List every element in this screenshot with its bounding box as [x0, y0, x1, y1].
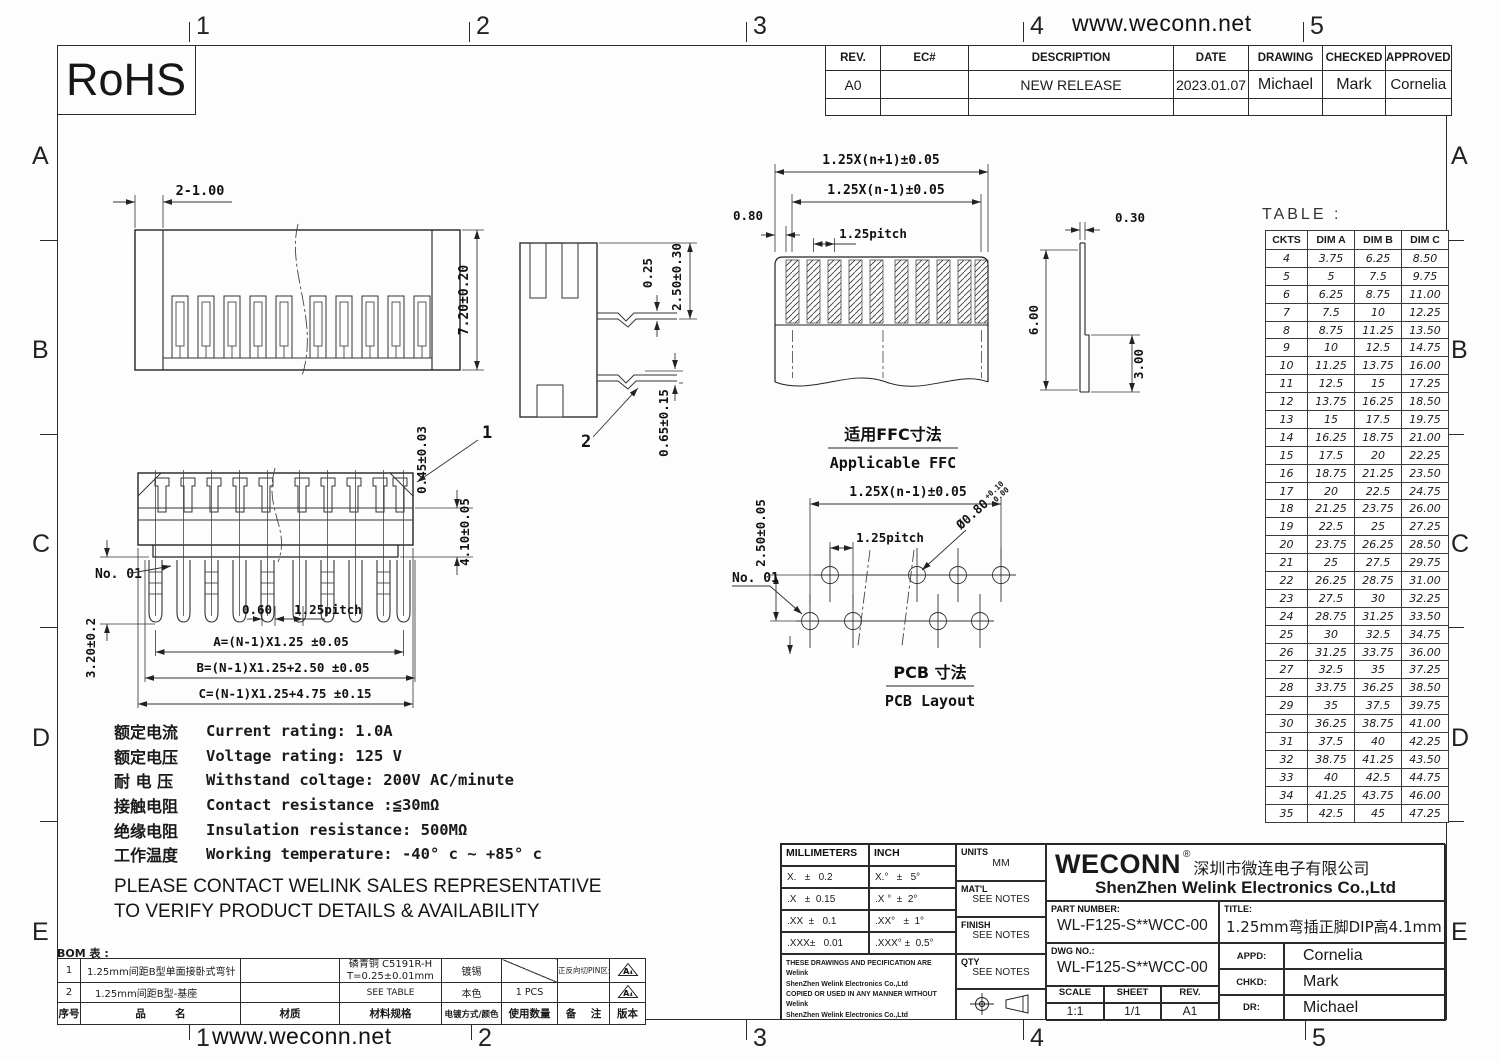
- dim-c-cell: 33.50: [1402, 607, 1449, 625]
- revision-header-cell: REV.: [826, 46, 881, 71]
- ckts-cell: 4: [1266, 250, 1308, 268]
- zone-number: 3: [753, 12, 767, 41]
- dim-a-cell: 38.75: [1308, 750, 1355, 768]
- table-row: 17 20 22.5 24.75: [1266, 482, 1449, 500]
- pcb-dim-hole: Ø0.80: [952, 496, 991, 533]
- bom-name: 1.25mm间距B型-基座: [81, 983, 241, 1003]
- dim-pin-length: 3.20±0.2: [85, 618, 98, 678]
- dr-value: Michael: [1284, 995, 1446, 1021]
- table-row: 30 36.25 38.75 41.00: [1266, 715, 1449, 733]
- company-header: WECONN ® 深圳市微连电子有限公司 ShenZhen Welink Ele…: [1046, 844, 1446, 901]
- qty-cell: QTY SEE NOTES: [956, 954, 1046, 989]
- ckts-cell: 26: [1266, 643, 1308, 661]
- qty-value: SEE NOTES: [957, 967, 1045, 978]
- dim-b-cell: 38.75: [1355, 715, 1402, 733]
- bottom-view-drawing: No. 01 3.20±0.2 0.60 1.25pitch A=(N-1)X1…: [85, 420, 510, 720]
- dim-c-cell: 17.25: [1402, 375, 1449, 393]
- dim-b-cell: 45: [1355, 804, 1402, 822]
- dim-c-cell: 32.25: [1402, 589, 1449, 607]
- ffc-caption-cn: 适用FFC寸法: [844, 425, 942, 444]
- zone-tick: [1447, 627, 1464, 628]
- drawing-sheet: 1 2 3 4 5 1 2 3 4 5 A B C D E A B C D E: [0, 0, 1500, 1061]
- dwg-no-cell: DWG NO.: WL-F125-S**WCC-00: [1046, 943, 1219, 986]
- dim-b-cell: 41.25: [1355, 750, 1402, 768]
- dim-b-cell: 16.25: [1355, 393, 1402, 411]
- table-row: 25 30 32.5 34.75: [1266, 625, 1449, 643]
- revision-header-row: REV.EC#DESCRIPTIONDATEDRAWINGCHECKEDAPPR…: [826, 46, 1452, 71]
- zone-tick: [1023, 1020, 1024, 1040]
- dim-housing-height: 7.20±0.20: [457, 265, 472, 336]
- dim-c-cell: 28.50: [1402, 536, 1449, 554]
- table-row: 8 8.75 11.25 13.50: [1266, 321, 1449, 339]
- ckts-cell: 6: [1266, 285, 1308, 303]
- table-row: 20 23.75 26.25 28.50: [1266, 536, 1449, 554]
- dim-table-header-cell: DIM C: [1402, 231, 1449, 250]
- sales-note-line1: PLEASE CONTACT WELINK SALES REPRESENTATI…: [114, 874, 601, 899]
- part-number-value: WL-F125-S**WCC-00: [1047, 914, 1218, 935]
- ffc-caption-en: Applicable FFC: [830, 454, 956, 472]
- units-value: MM: [957, 857, 1045, 869]
- tolerance-row: .XXX± 0.01 .XXX° ± 0.5°: [781, 932, 956, 954]
- table-row: 19 22.5 25 27.25: [1266, 518, 1449, 536]
- appd-value: Cornelia: [1284, 943, 1446, 969]
- table-row: 18 21.25 23.75 26.00: [1266, 500, 1449, 518]
- revision-header-cell: CHECKED: [1323, 46, 1386, 71]
- disclaimer: THESE DRAWINGS AND PECIFICATION ARE Weli…: [781, 954, 956, 1020]
- revision-table: REV.EC#DESCRIPTIONDATEDRAWINGCHECKEDAPPR…: [825, 45, 1452, 116]
- zone-tick: [1447, 434, 1464, 435]
- spec-label-cn: 耐 电 压: [114, 768, 206, 792]
- dim-a-cell: 5: [1308, 267, 1355, 285]
- dim-b-cell: 8.75: [1355, 285, 1402, 303]
- dim-b-cell: 40: [1355, 733, 1402, 751]
- tolerance-row: .XX ± 0.1 .XX° ± 1°: [781, 910, 956, 932]
- ckts-cell: 18: [1266, 500, 1308, 518]
- dim-a-cell: 40: [1308, 768, 1355, 786]
- table-row: 21 25 27.5 29.75: [1266, 554, 1449, 572]
- zone-letter: B: [32, 336, 49, 365]
- spec-line: 工作温度 Working temperature: -40° c ~ +85° …: [114, 842, 601, 867]
- tolerance-row: X. ± 0.2 X.° ± 5°: [781, 866, 956, 888]
- scale-label: SCALE: [1046, 986, 1104, 1003]
- dim-a-cell: 31.25: [1308, 643, 1355, 661]
- zone-letter: C: [1451, 530, 1469, 559]
- bom-spec-line1: 磷青铜 C5191R-H: [340, 959, 441, 971]
- dim-b-cell: 15: [1355, 375, 1402, 393]
- spec-line: 接触电阻 Contact resistance :≦30mΩ: [114, 793, 601, 818]
- bom-rev: A₄: [610, 959, 646, 983]
- table-row: 22 26.25 28.75 31.00: [1266, 572, 1449, 590]
- dim-a-cell: 15: [1308, 411, 1355, 429]
- bom-plating: 本色: [442, 983, 502, 1003]
- dim-a-cell: 26.25: [1308, 572, 1355, 590]
- dim-b-cell: 11.25: [1355, 321, 1402, 339]
- dim-a-cell: 35: [1308, 697, 1355, 715]
- revision-triangle-icon: A₄: [617, 984, 639, 999]
- zone-number: 5: [1312, 1024, 1326, 1053]
- disclaimer-line: ShenZhen Welink Electronics Co.,Ltd: [786, 980, 953, 990]
- pin1-label: No. 01: [95, 567, 142, 582]
- bom-spec: 磷青铜 C5191R-H T=0.25±0.01mm: [340, 959, 442, 983]
- dim-a-cell: 11.25: [1308, 357, 1355, 375]
- zone-tick: [1447, 821, 1464, 822]
- revision-empty-row: [826, 99, 1452, 116]
- dim-b-cell: 10: [1355, 303, 1402, 321]
- ckts-cell: 11: [1266, 375, 1308, 393]
- pcb-dim-span: 1.25X(n-1)±0.05: [849, 485, 966, 500]
- dim-c-cell: 38.50: [1402, 679, 1449, 697]
- bom-table: 1 1.25mm间距B型单面接卧式弯针 磷青铜 C5191R-H T=0.25±…: [57, 958, 646, 1025]
- dim-a-cell: 16.25: [1308, 428, 1355, 446]
- zone-number: 2: [476, 12, 490, 41]
- zone-letter: B: [1451, 336, 1468, 365]
- dim-c-cell: 19.75: [1402, 411, 1449, 429]
- dim-b-cell: 13.75: [1355, 357, 1402, 375]
- company-name-en: ShenZhen Welink Electronics Co.,Ltd: [1095, 878, 1445, 898]
- zone-tick: [1303, 22, 1304, 42]
- dim-a-cell: 6.25: [1308, 285, 1355, 303]
- table-row: 32 38.75 41.25 43.50: [1266, 750, 1449, 768]
- ckts-cell: 17: [1266, 482, 1308, 500]
- ckts-cell: 15: [1266, 446, 1308, 464]
- dim-a-cell: 13.75: [1308, 393, 1355, 411]
- tol-inch-value: .XX° ± 1°: [869, 910, 956, 932]
- drawing-title-value: 1.25mm弯插正脚DIP高4.1mm: [1220, 914, 1445, 937]
- bom-block: BOM 表 : 1 1.25mm间距B型单面接卧式弯针 磷青铜 C5191R-H…: [57, 945, 645, 1025]
- table-row: 16 18.75 21.25 23.50: [1266, 464, 1449, 482]
- spec-line: 绝缘电阻 Insulation resistance: 500MΩ: [114, 817, 601, 842]
- table-row: 7 7.5 10 12.25: [1266, 303, 1449, 321]
- zone-number: 2: [478, 1024, 492, 1053]
- ckts-cell: 27: [1266, 661, 1308, 679]
- table-row: 15 17.5 20 22.25: [1266, 446, 1449, 464]
- table-row: 29 35 37.5 39.75: [1266, 697, 1449, 715]
- company-name-cn: 深圳市微连电子有限公司: [1193, 855, 1369, 879]
- bom-rev: A₄: [610, 983, 646, 1003]
- ckts-cell: 12: [1266, 393, 1308, 411]
- dim-b-cell: 35: [1355, 661, 1402, 679]
- zone-tick: [746, 22, 747, 42]
- table-row: 12 13.75 16.25 18.50: [1266, 393, 1449, 411]
- bom-no: 2: [58, 983, 81, 1003]
- dim-b-cell: 25: [1355, 518, 1402, 536]
- table-row: 9 10 12.5 14.75: [1266, 339, 1449, 357]
- table-row: 26 31.25 33.75 36.00: [1266, 643, 1449, 661]
- dr-label: DR:: [1219, 995, 1284, 1021]
- dim-b-cell: 33.75: [1355, 643, 1402, 661]
- dim-c-cell: 14.75: [1402, 339, 1449, 357]
- part-number-cell: PART NUMBER: WL-F125-S**WCC-00: [1046, 901, 1219, 943]
- dim-b-cell: 18.75: [1355, 428, 1402, 446]
- spec-value-en: Working temperature: -40° c ~ +85° c: [206, 845, 542, 863]
- dim-a: A=(N-1)X1.25 ±0.05: [213, 634, 348, 649]
- dim-c-cell: 47.25: [1402, 804, 1449, 822]
- ckts-cell: 25: [1266, 625, 1308, 643]
- dim-b-cell: 17.5: [1355, 411, 1402, 429]
- zone-letter: C: [32, 530, 50, 559]
- ckts-cell: 16: [1266, 464, 1308, 482]
- zone-letter: A: [32, 142, 49, 171]
- table-row: 6 6.25 8.75 11.00: [1266, 285, 1449, 303]
- dim-b-cell: 32.5: [1355, 625, 1402, 643]
- dim-pin-offset: 0.65±0.15: [656, 389, 671, 457]
- tol-mm-value: X. ± 0.2: [781, 866, 869, 888]
- dim-c-cell: 42.25: [1402, 733, 1449, 751]
- pcb-caption-cn: PCB 寸法: [893, 663, 966, 682]
- ec-cell: [881, 71, 969, 99]
- dim-a-cell: 8.75: [1308, 321, 1355, 339]
- date-cell: 2023.01.07: [1174, 71, 1249, 99]
- side-view-drawing: 0.25 2.50±0.30 0.65±0.15 2: [505, 225, 715, 465]
- zone-tick: [40, 821, 57, 822]
- bom-remark: 正反向切PIN区分: [558, 959, 610, 983]
- dim-a-cell: 21.25: [1308, 500, 1355, 518]
- dim-a-cell: 23.75: [1308, 536, 1355, 554]
- dim-a-cell: 41.25: [1308, 786, 1355, 804]
- ffc-dim-exposed: 6.00: [1026, 305, 1041, 335]
- dim-c-cell: 24.75: [1402, 482, 1449, 500]
- tol-mm-header: MILLIMETERS: [781, 844, 869, 866]
- zone-number: 3: [753, 1024, 767, 1053]
- ckts-cell: 8: [1266, 321, 1308, 339]
- ckts-cell: 20: [1266, 536, 1308, 554]
- ckts-cell: 32: [1266, 750, 1308, 768]
- dwg-no-value: WL-F125-S**WCC-00: [1047, 956, 1218, 977]
- ckts-cell: 24: [1266, 607, 1308, 625]
- spec-value-en: Current rating: 1.0A: [206, 722, 393, 740]
- pcb-dim-pitch: 1.25pitch: [856, 530, 924, 545]
- dim-c-cell: 9.75: [1402, 267, 1449, 285]
- revision-header-cell: DATE: [1174, 46, 1249, 71]
- ffc-view-drawing: 1.25X(n+1)±0.05 1.25X(n-1)±0.05 0.80 1.2…: [728, 140, 1198, 490]
- dim-b-cell: 23.75: [1355, 500, 1402, 518]
- ckts-cell: 31: [1266, 733, 1308, 751]
- zone-letter: E: [32, 918, 49, 947]
- disclaimer-line: COPIED OR USED IN ANY MANNER WITHOUT Wel…: [786, 990, 953, 1011]
- dim-c-cell: 37.25: [1402, 661, 1449, 679]
- chkd-value: Mark: [1284, 969, 1446, 995]
- dim-a-cell: 36.25: [1308, 715, 1355, 733]
- table-row: 4 3.75 6.25 8.50: [1266, 250, 1449, 268]
- dim-a-cell: 3.75: [1308, 250, 1355, 268]
- ckts-cell: 30: [1266, 715, 1308, 733]
- spec-block: 额定电流 Current rating: 1.0A 额定电压 Voltage r…: [114, 719, 601, 924]
- dim-b-cell: 42.5: [1355, 768, 1402, 786]
- dim-table: CKTSDIM ADIM BDIM C 4 3.75 6.25 8.50 5 5…: [1265, 230, 1449, 823]
- ffc-dim-pitch: 1.25pitch: [839, 226, 907, 241]
- dim-c-cell: 21.00: [1402, 428, 1449, 446]
- ckts-cell: 29: [1266, 697, 1308, 715]
- revision-triangle-icon: A₄: [617, 962, 639, 977]
- ffc-dim-thickness: 0.30: [1115, 210, 1145, 225]
- dim-c-cell: 34.75: [1402, 625, 1449, 643]
- website-bottom: www.weconn.net: [212, 1023, 392, 1050]
- bom-material: [241, 983, 340, 1003]
- ckts-cell: 34: [1266, 786, 1308, 804]
- dim-table-header-cell: DIM B: [1355, 231, 1402, 250]
- chkd-label: CHKD:: [1219, 969, 1284, 995]
- dim-c-cell: 31.00: [1402, 572, 1449, 590]
- dim-table-header-row: CKTSDIM ADIM BDIM C: [1266, 231, 1449, 250]
- dim-depth: 4.10±0.05: [457, 498, 472, 566]
- revision-header-cell: APPROVED: [1386, 46, 1452, 71]
- spec-label-cn: 额定电流: [114, 719, 206, 743]
- dim-a-cell: 42.5: [1308, 804, 1355, 822]
- dim-c-cell: 8.50: [1402, 250, 1449, 268]
- sheet-label: SHEET: [1104, 986, 1161, 1003]
- projection-symbol-cell: [956, 989, 1046, 1020]
- dim-table-header-cell: CKTS: [1266, 231, 1308, 250]
- sheet-value: 1/1: [1104, 1003, 1161, 1021]
- dim-c: C=(N-1)X1.25+4.75 ±0.15: [198, 686, 371, 701]
- ckts-cell: 9: [1266, 339, 1308, 357]
- dim-b-cell: 7.5: [1355, 267, 1402, 285]
- dim-c-cell: 27.25: [1402, 518, 1449, 536]
- dim-c-cell: 36.00: [1402, 643, 1449, 661]
- dim-b-cell: 27.5: [1355, 554, 1402, 572]
- svg-text:A₄: A₄: [623, 967, 633, 976]
- dim-pin-height: 2.50±0.30: [669, 243, 684, 311]
- units-cell: UNITS MM: [956, 844, 1046, 881]
- table-row: 24 28.75 31.25 33.50: [1266, 607, 1449, 625]
- ckts-cell: 28: [1266, 679, 1308, 697]
- zone-tick: [40, 627, 57, 628]
- zone-number: 4: [1030, 1024, 1044, 1053]
- rev-cell: A0: [826, 71, 881, 99]
- ckts-cell: 5: [1266, 267, 1308, 285]
- dim-a-cell: 27.5: [1308, 589, 1355, 607]
- dim-c-cell: 46.00: [1402, 786, 1449, 804]
- dim-b: B=(N-1)X1.25+2.50 ±0.05: [196, 660, 369, 675]
- zone-number: 4: [1030, 12, 1044, 41]
- table-row: 33 40 42.5 44.75: [1266, 768, 1449, 786]
- dim-a-cell: 22.5: [1308, 518, 1355, 536]
- tol-mm-value: .XXX± 0.01: [781, 932, 869, 954]
- dim-b-cell: 30: [1355, 589, 1402, 607]
- dim-b-cell: 12.5: [1355, 339, 1402, 357]
- zone-letter: D: [32, 724, 50, 753]
- ffc-dim-stiffener: 3.00: [1131, 349, 1146, 379]
- revision-data-row: A0 NEW RELEASE 2023.01.07 Michael Mark C…: [826, 71, 1452, 99]
- ckts-cell: 23: [1266, 589, 1308, 607]
- dim-a-cell: 37.5: [1308, 733, 1355, 751]
- weconn-logo: WECONN: [1055, 849, 1181, 880]
- zone-tick: [40, 240, 57, 241]
- dim-b-cell: 37.5: [1355, 697, 1402, 715]
- revision-header-cell: DESCRIPTION: [969, 46, 1174, 71]
- dim-b-cell: 43.75: [1355, 786, 1402, 804]
- bom-plating: 镀锡: [442, 959, 502, 983]
- tol-inch-value: .XXX° ± 0.5°: [869, 932, 956, 954]
- dim-c-cell: 23.50: [1402, 464, 1449, 482]
- dim-c-cell: 11.00: [1402, 285, 1449, 303]
- appd-label: APPD:: [1219, 943, 1284, 969]
- matl-value: SEE NOTES: [957, 894, 1045, 905]
- revision-header-cell: EC#: [881, 46, 969, 71]
- dim-a-cell: 18.75: [1308, 464, 1355, 482]
- disclaimer-line: THESE DRAWINGS AND PECIFICATION ARE Weli…: [786, 959, 953, 980]
- tol-inch-value: X.° ± 5°: [869, 866, 956, 888]
- balloon-1: 1: [482, 423, 492, 443]
- table-row: 14 16.25 18.75 21.00: [1266, 428, 1449, 446]
- dim-c-cell: 39.75: [1402, 697, 1449, 715]
- spec-value-en: Withstand coltage: 200V AC/minute: [206, 771, 514, 789]
- ffc-dim-inner: 1.25X(n-1)±0.05: [827, 183, 944, 198]
- balloon-2: 2: [581, 432, 591, 452]
- pcb-dim-rows: 2.50±0.05: [753, 499, 768, 567]
- finish-value: SEE NOTES: [957, 930, 1045, 941]
- dim-c-cell: 44.75: [1402, 768, 1449, 786]
- dim-a-cell: 25: [1308, 554, 1355, 572]
- dim-a-cell: 32.5: [1308, 661, 1355, 679]
- ffc-dim-total: 1.25X(n+1)±0.05: [822, 153, 939, 168]
- zone-number: 1: [196, 12, 210, 41]
- dim-a-cell: 7.5: [1308, 303, 1355, 321]
- bom-material: [241, 959, 340, 983]
- dim-pin-thickness: 0.25: [640, 258, 655, 288]
- tol-mm-value: .X ± 0.15: [781, 888, 869, 910]
- zone-tick: [469, 22, 470, 42]
- checked-cell: Mark: [1323, 71, 1386, 99]
- dim-chamfer: 0.45±0.03: [414, 426, 429, 494]
- bom-row-1: 1 1.25mm间距B型单面接卧式弯针 磷青铜 C5191R-H T=0.25±…: [58, 959, 646, 983]
- dim-b-cell: 21.25: [1355, 464, 1402, 482]
- tol-inch-header: INCH: [869, 844, 956, 866]
- third-angle-projection-icon: [964, 991, 1038, 1017]
- table-row: 28 33.75 36.25 38.50: [1266, 679, 1449, 697]
- zone-tick: [746, 1020, 747, 1040]
- pcb-caption-en: PCB Layout: [885, 692, 975, 710]
- dim-a-cell: 10: [1308, 339, 1355, 357]
- bom-no: 1: [58, 959, 81, 983]
- disclaimer-line: ShenZhen Welink Electronics Co.,Ltd: [786, 1011, 953, 1020]
- ckts-cell: 21: [1266, 554, 1308, 572]
- dim-c-cell: 12.25: [1402, 303, 1449, 321]
- drawing-cell: Michael: [1249, 71, 1323, 99]
- dim-c-cell: 13.50: [1402, 321, 1449, 339]
- pcb-pin1-label: No. 01: [732, 571, 779, 586]
- table-row: 11 12.5 15 17.25: [1266, 375, 1449, 393]
- spec-value-en: Insulation resistance: 500MΩ: [206, 821, 467, 839]
- tol-inch-value: .X ° ± 2°: [869, 888, 956, 910]
- dim-c-cell: 18.50: [1402, 393, 1449, 411]
- rohs-badge: RoHS: [57, 45, 196, 115]
- bom-remark: [558, 983, 610, 1003]
- ckts-cell: 33: [1266, 768, 1308, 786]
- ffc-dim-margin: 0.80: [733, 208, 763, 223]
- bom-qty: 1 PCS: [502, 983, 558, 1003]
- ckts-cell: 35: [1266, 804, 1308, 822]
- bom-name: 1.25mm间距B型单面接卧式弯针: [81, 959, 241, 983]
- dim-pitch: 1.25pitch: [294, 602, 362, 617]
- dim-a-cell: 17.5: [1308, 446, 1355, 464]
- spec-line: 额定电压 Voltage rating: 125 V: [114, 744, 601, 769]
- table-row: 35 42.5 45 47.25: [1266, 804, 1449, 822]
- dim-a-cell: 30: [1308, 625, 1355, 643]
- table-row: 5 5 7.5 9.75: [1266, 267, 1449, 285]
- dim-a-cell: 20: [1308, 482, 1355, 500]
- finish-cell: FINISH SEE NOTES: [956, 917, 1046, 954]
- spec-label-cn: 接触电阻: [114, 793, 206, 817]
- ckts-cell: 14: [1266, 428, 1308, 446]
- matl-cell: MAT'L SEE NOTES: [956, 881, 1046, 917]
- zone-tick: [40, 434, 57, 435]
- sales-note-line2: TO VERIFY PRODUCT DETAILS & AVAILABILITY: [114, 899, 601, 924]
- dim-table-header-cell: DIM A: [1308, 231, 1355, 250]
- spec-label-cn: 绝缘电阻: [114, 818, 206, 842]
- dim-c-cell: 22.25: [1402, 446, 1449, 464]
- zone-letter: A: [1451, 142, 1468, 171]
